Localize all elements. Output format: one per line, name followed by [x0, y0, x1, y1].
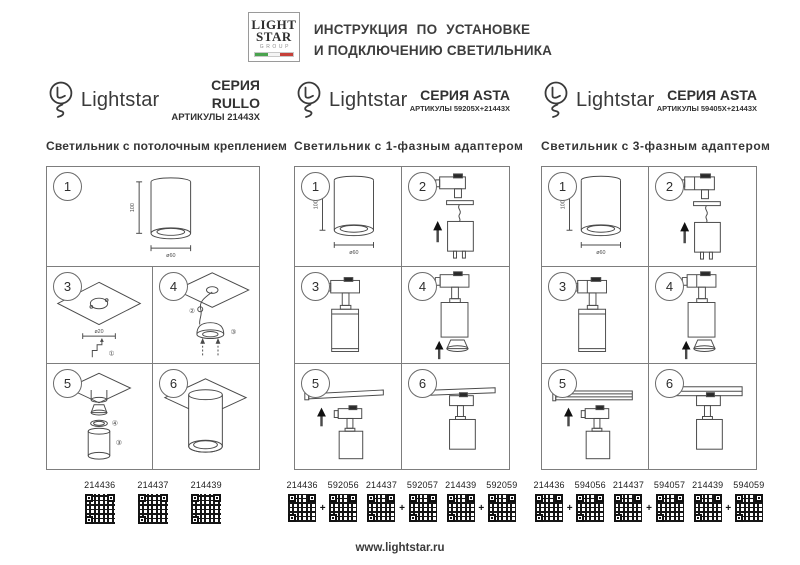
code-pair: 214436 + 592056: [287, 480, 359, 522]
plus-sign: +: [399, 503, 405, 514]
qr-code: [409, 494, 437, 522]
code-item: 214436: [287, 480, 318, 522]
step-number: 6: [159, 369, 188, 398]
product-code: 594057: [654, 480, 685, 490]
step-number: 5: [53, 369, 82, 398]
qr-code: [488, 494, 516, 522]
callout-2: ②: [189, 307, 195, 315]
step-number: 3: [53, 272, 82, 301]
step-cell-2: 2: [402, 167, 509, 267]
step-number: 4: [159, 272, 188, 301]
installation-steps-grid: 1 100 ø60: [541, 166, 757, 470]
product-code: 214437: [137, 480, 168, 490]
lightstar-bulb-icon: [46, 80, 76, 120]
product-code: 214437: [366, 480, 397, 490]
logo-text-group: GROUP: [260, 45, 291, 50]
header: LIGHT STAR GROUP ИНСТРУКЦИЯ ПО УСТАНОВКЕ…: [0, 12, 800, 62]
code-item: 214436: [534, 480, 565, 522]
column-subtitle: Светильник с 3-фазным адаптером: [541, 139, 757, 153]
qr-code: [694, 494, 722, 522]
qr-code: [576, 494, 604, 522]
step-cell-6: 6: [153, 364, 259, 469]
qr-code: [656, 494, 684, 522]
code-pair: 214436 + 594056: [534, 480, 606, 522]
step-cell-6: 6: [402, 364, 509, 469]
callout-3: ③: [230, 328, 236, 336]
step-number: 6: [655, 369, 684, 398]
step-cell-5: 5: [542, 364, 649, 469]
code-pair: 214439 + 594059: [692, 480, 764, 522]
document-title: ИНСТРУКЦИЯ ПО УСТАНОВКЕ И ПОДКЛЮЧЕНИЮ СВ…: [314, 12, 552, 62]
product-code: 592059: [486, 480, 517, 490]
dim-diameter-label: ø60: [166, 253, 175, 259]
code-item: 214439: [692, 480, 723, 522]
logo-text-star: STAR: [256, 31, 292, 43]
lightstar-bulb-icon: [541, 80, 571, 120]
step-number: 5: [301, 369, 330, 398]
qr-code: [329, 494, 357, 522]
step-cell-1: 1 100 ø60: [47, 167, 259, 267]
callout-1: ①: [109, 349, 115, 357]
code-item: 594057: [654, 480, 685, 522]
plus-sign: +: [725, 503, 731, 514]
column-subtitle: Светильник с потолочным креплением: [46, 139, 260, 153]
code-item: 594056: [575, 480, 606, 522]
qr-code: [367, 494, 395, 522]
brand-row: Lightstar СЕРИЯ RULLO АРТИКУЛЫ 21443X: [46, 78, 260, 122]
plus-sign: +: [320, 503, 326, 514]
brand-wordmark: Lightstar: [81, 89, 160, 112]
step-number: 3: [548, 272, 577, 301]
step-number: 6: [408, 369, 437, 398]
dim-height-label: 100: [561, 200, 567, 209]
code-pair: 214437 + 592057: [366, 480, 438, 522]
step-number: 5: [548, 369, 577, 398]
step-number: 3: [301, 272, 330, 301]
qr-code: [85, 494, 115, 524]
qr-code: [735, 494, 763, 522]
instruction-sheet: LIGHT STAR GROUP ИНСТРУКЦИЯ ПО УСТАНОВКЕ…: [0, 0, 800, 565]
series-articles: АРТИКУЛЫ 59205X+21443X: [410, 104, 510, 114]
product-code: 214436: [287, 480, 318, 490]
brand-row: Lightstar СЕРИЯ ASTA АРТИКУЛЫ 59205X+214…: [294, 78, 510, 122]
step-cell-1: 1 100 ø60: [542, 167, 649, 267]
title-line-1: ИНСТРУКЦИЯ ПО УСТАНОВКЕ: [314, 20, 552, 41]
product-code: 214439: [445, 480, 476, 490]
step-number: 4: [655, 272, 684, 301]
dim-height-label: 100: [314, 200, 320, 209]
code-item: 214437: [137, 480, 168, 524]
code-pair: 214437 + 594057: [613, 480, 685, 522]
step-cell-3: 3: [295, 267, 402, 364]
brand-wordmark: Lightstar: [329, 89, 408, 112]
step-cell-5: 5 ④ ③: [47, 364, 153, 469]
plus-sign: +: [478, 503, 484, 514]
plus-sign: +: [646, 503, 652, 514]
product-code: 592057: [407, 480, 438, 490]
dim-diameter-label: ø60: [596, 250, 605, 256]
column-subtitle: Светильник с 1-фазным адаптером: [294, 139, 510, 153]
step-cell-2: 2: [649, 167, 756, 267]
step-cell-4: 4: [402, 267, 509, 364]
column-asta-1phase: Lightstar СЕРИЯ ASTA АРТИКУЛЫ 59205X+214…: [294, 78, 510, 522]
dim-diameter-label: ø60: [349, 250, 358, 256]
step-cell-3: 3: [542, 267, 649, 364]
code-item: 214436: [84, 480, 115, 524]
code-item: 214439: [191, 480, 222, 524]
installation-steps-grid: 1 100 ø60: [46, 166, 260, 470]
series-block: СЕРИЯ RULLO АРТИКУЛЫ 21443X: [159, 76, 260, 125]
qr-code: [447, 494, 475, 522]
step-cell-4: 4 ② ③: [153, 267, 259, 364]
step-number: 2: [655, 172, 684, 201]
product-code: 214437: [613, 480, 644, 490]
product-code: 594059: [733, 480, 764, 490]
product-codes-row: 214436 214437 214439: [46, 480, 260, 524]
lightstar-group-logo: LIGHT STAR GROUP: [248, 12, 300, 62]
qr-code: [614, 494, 642, 522]
qr-code: [535, 494, 563, 522]
series-name: СЕРИЯ RULLO: [159, 76, 260, 112]
product-code: 214439: [191, 480, 222, 490]
step-cell-4: 4: [649, 267, 756, 364]
series-articles: АРТИКУЛЫ 59405X+21443X: [657, 104, 757, 114]
brand-wordmark: Lightstar: [576, 89, 655, 112]
step-number: 1: [53, 172, 82, 201]
plus-sign: +: [567, 503, 573, 514]
code-item: 594059: [733, 480, 764, 522]
code-item: 592057: [407, 480, 438, 522]
step-cell-1: 1 100 ø60: [295, 167, 402, 267]
column-asta-3phase: Lightstar СЕРИЯ ASTA АРТИКУЛЫ 59405X+214…: [541, 78, 757, 522]
step-cell-6: 6: [649, 364, 756, 469]
code-pair: 214439 + 592059: [445, 480, 517, 522]
qr-code: [191, 494, 221, 524]
brand-row: Lightstar СЕРИЯ ASTA АРТИКУЛЫ 59405X+214…: [541, 78, 757, 122]
callout-3: ③: [116, 439, 122, 447]
code-item: 214439: [445, 480, 476, 522]
product-codes-row: 214436 + 592056 214437 + 592057: [294, 480, 510, 522]
website-url: www.lightstar.ru: [0, 542, 800, 554]
code-item: 214437: [613, 480, 644, 522]
product-code: 214436: [84, 480, 115, 490]
callout-4: ④: [112, 419, 118, 427]
step-cell-3: 3 ø20 ①: [47, 267, 153, 364]
product-code: 592056: [328, 480, 359, 490]
code-item: 592059: [486, 480, 517, 522]
series-name: СЕРИЯ ASTA: [410, 86, 510, 104]
qr-code: [138, 494, 168, 524]
product-code: 214436: [534, 480, 565, 490]
dim-hole-label: ø20: [94, 329, 103, 335]
series-name: СЕРИЯ ASTA: [657, 86, 757, 104]
product-codes-row: 214436 + 594056 214437 + 594057: [541, 480, 757, 522]
step-number: 1: [301, 172, 330, 201]
dim-height-label: 100: [130, 203, 136, 212]
code-item: 592056: [328, 480, 359, 522]
code-item: 214437: [366, 480, 397, 522]
qr-code: [288, 494, 316, 522]
lightstar-bulb-icon: [294, 80, 324, 120]
series-block: СЕРИЯ ASTA АРТИКУЛЫ 59405X+21443X: [657, 86, 757, 114]
series-block: СЕРИЯ ASTA АРТИКУЛЫ 59205X+21443X: [410, 86, 510, 114]
installation-steps-grid: 1 100 ø60: [294, 166, 510, 470]
product-code: 214439: [692, 480, 723, 490]
step-cell-5: 5: [295, 364, 402, 469]
title-line-2: И ПОДКЛЮЧЕНИЮ СВЕТИЛЬНИКА: [314, 41, 552, 62]
series-articles: АРТИКУЛЫ 21443X: [159, 112, 260, 124]
column-rullo: Lightstar СЕРИЯ RULLO АРТИКУЛЫ 21443X Св…: [46, 78, 260, 524]
step-number: 1: [548, 172, 577, 201]
product-code: 594056: [575, 480, 606, 490]
italian-flag-bar: [254, 52, 294, 57]
step-number: 2: [408, 172, 437, 201]
step-number: 4: [408, 272, 437, 301]
